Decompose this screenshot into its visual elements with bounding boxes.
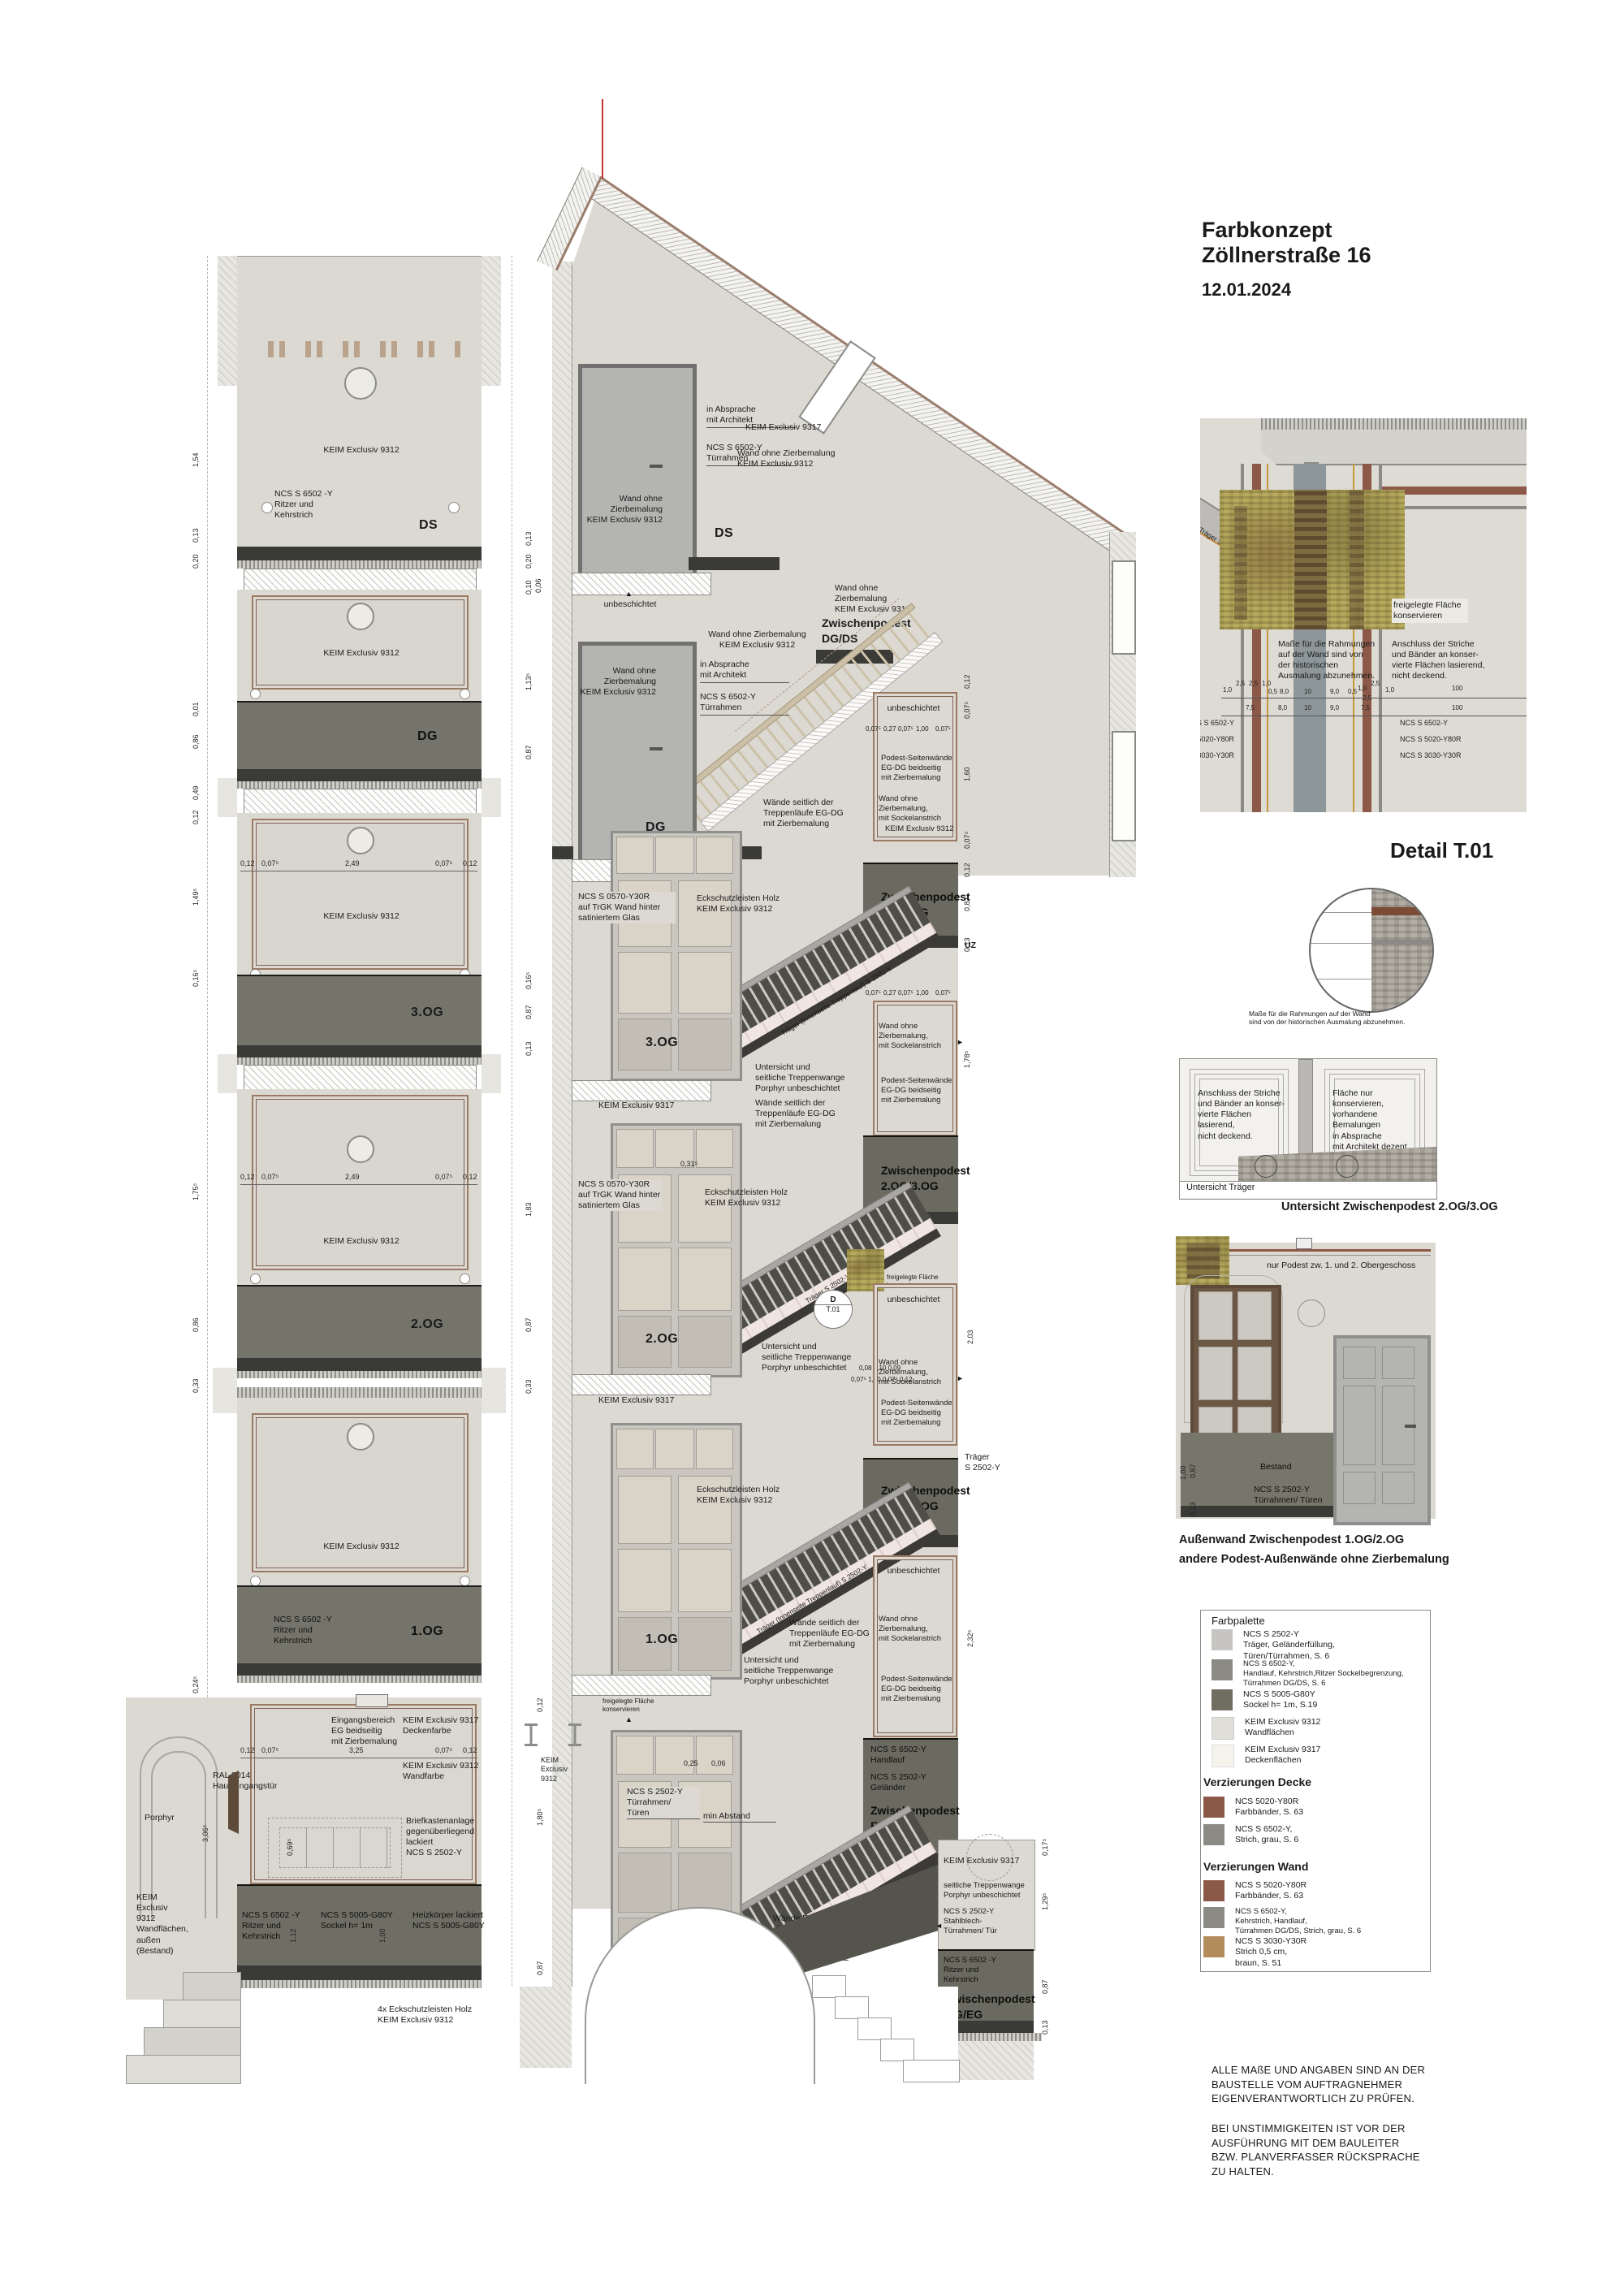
detail-marker-d: D	[814, 1295, 852, 1305]
og3-tile	[237, 1057, 482, 1065]
podrow2-2: 0,27	[883, 989, 896, 997]
section-floor-1og: 1.OG	[646, 1632, 678, 1647]
eg-transom	[356, 1694, 388, 1707]
og2-dim5: 0,12	[463, 1173, 477, 1181]
eckschutz-2: Eckschutzleisten Holz KEIM Exclusiv 9312	[705, 1187, 818, 1209]
podrow2-4: 1,00	[916, 989, 929, 997]
section-slab-1og	[572, 1675, 711, 1696]
dimL-5: 0,49	[192, 785, 200, 800]
legend-row-d1: NCS S 6502-Y,Strich, grau, S. 6	[1203, 1824, 1415, 1846]
og1-tile	[237, 1676, 482, 1683]
min-abstand: min Abstand	[703, 1811, 776, 1823]
zw-kgeg: Zwischenpodest KG/EG	[946, 1991, 1035, 2022]
og2-dim1: 0,12	[240, 1173, 255, 1181]
ds-slab-unbeschichtet: unbeschichtet	[590, 599, 671, 610]
kg-stair-steps	[812, 1975, 958, 2084]
sheet-date: 12.01.2024	[1202, 279, 1543, 301]
dimR-9: 1,83	[525, 1202, 533, 1217]
og2-tile2	[237, 1387, 482, 1398]
og3-dim-row5: 0,12	[463, 859, 477, 867]
og2-wall-paint: KEIM Exclusiv 9312	[292, 1236, 430, 1247]
eg-dim3: 3,25	[349, 1746, 364, 1754]
og3-strip	[237, 1045, 482, 1057]
dg-tile	[237, 781, 482, 789]
exterior-steps	[126, 1972, 240, 2086]
t01-freigelegt: freigelegte Fläche konservieren	[1392, 599, 1468, 623]
ds-anchor-left	[261, 502, 273, 513]
podrow2-1: 0,07⁵	[866, 989, 881, 997]
ground-left	[520, 1987, 572, 2068]
ds-slab-arrow: ▲	[625, 590, 633, 598]
t01-masse: Maße für die Rahmungen auf der Wand sind…	[1278, 639, 1388, 682]
dimL-0: 1,54	[192, 452, 200, 467]
kg-arrow: ◄	[935, 1922, 943, 1930]
aw-nur-podest: nur Podest zw. 1. und 2. Obergeschoss	[1267, 1261, 1429, 1271]
parapet-right	[482, 256, 501, 386]
og1-wall-paint: KEIM Exclusiv 9312	[292, 1542, 430, 1552]
dg-slab-end-r	[482, 778, 501, 817]
dg-slab	[244, 789, 477, 815]
og3-medallion	[347, 827, 374, 854]
dg-spandrel	[237, 701, 482, 771]
swatch-d1	[1203, 1824, 1224, 1845]
dimR-2: 0,06	[534, 578, 542, 593]
og2-dim3: 2,49	[345, 1173, 360, 1181]
untersicht-anschluss: Anschluss der Striche und Bänder an kons…	[1198, 1088, 1289, 1142]
eg-door-note: NCS S 2502-Y Türrahmen/ Türen	[627, 1787, 700, 1819]
porphyr-note: Porphyr	[145, 1813, 193, 1823]
dimS-4: 0,12	[963, 863, 971, 877]
dim-006: 0,06	[711, 1759, 726, 1767]
sockel-note: NCS S 5005-G80Y Sockel h= 1m	[321, 1910, 412, 1931]
dim-025: 0,25	[684, 1759, 698, 1767]
ds-anchor-right	[448, 502, 460, 513]
swatch-p3	[1212, 1717, 1234, 1740]
sockel-ritzer-note: NCS S 6502 -Y Ritzer und Kehrstrich	[242, 1910, 312, 1942]
pod0-panel	[873, 1555, 957, 1737]
aw-bestand: Bestand	[1260, 1462, 1309, 1472]
dg-medallion	[347, 603, 374, 630]
eckschutz4-note: 4x Eckschutzleisten Holz KEIM Exclusiv 9…	[378, 2004, 499, 2026]
dimL-10: 0,86	[192, 1317, 200, 1332]
drawing-sheet: Farbkonzept Zöllnerstraße 16 12.01.2024 …	[0, 0, 1624, 2279]
swatch-w1	[1203, 1907, 1224, 1928]
untersicht-traeger-label: Untersicht Träger	[1186, 1183, 1255, 1194]
ds-slab-tile	[237, 560, 482, 569]
ceil-9317-2og: KEIM Exclusiv 9317	[598, 1395, 704, 1406]
legend-title: Farbpalette	[1212, 1615, 1265, 1628]
swatch-p2	[1212, 1689, 1233, 1710]
aussenwand-detail: nur Podest zw. 1. und 2. Obergeschoss Be…	[1176, 1236, 1436, 1525]
dimR-3: 0,10	[525, 580, 533, 595]
og3-dim-row2: 0,07⁵	[261, 859, 279, 867]
og3-slab-end-r	[482, 1054, 501, 1093]
dimS-13: 0,13	[1041, 2020, 1049, 2035]
podrow1-1: 0,07⁵	[866, 725, 881, 733]
og3-dim-line	[240, 871, 477, 871]
swatch-w2	[1203, 1936, 1224, 1957]
pod0-unbeschichtet: unbeschichtet	[881, 1566, 946, 1576]
dimS-12: 0,87	[1041, 1979, 1049, 1994]
aussenwand-caption2: andere Podest-Außenwände ohne Zierbemalu…	[1179, 1553, 1449, 1566]
legend-row-p4: KEIM Exclusiv 9317Deckenflächen	[1212, 1745, 1423, 1767]
dimL-1: 0,20	[192, 554, 200, 569]
dimL-15: 1,00	[378, 1928, 387, 1943]
pod2-seiten: Podest-Seitenwände EG-DG beidseitig mit …	[881, 1076, 954, 1105]
dimL-12: 0,24⁵	[192, 1676, 200, 1693]
legend-row-p1: NCS S 6502-Y,Handlauf, Kehrstrich,Ritzer…	[1212, 1659, 1431, 1689]
section-slab-ds	[572, 573, 711, 595]
facade-window-1	[1112, 560, 1136, 655]
ds-door-handle	[650, 465, 663, 468]
pod1-arrow: ►	[957, 1374, 964, 1382]
og3-wall-paint: KEIM Exclusiv 9312	[292, 911, 430, 922]
og2-dim-line	[240, 1184, 477, 1185]
detail-t01: Träger S 2502-Y freigelegte Fläche konse…	[1200, 418, 1527, 812]
og1-ritzer-note: NCS S 6502 -Y Ritzer und Kehrstrich	[274, 1615, 363, 1646]
dimL-13: 3,06⁵	[201, 1825, 209, 1842]
pod1-sockel: Wand ohne Zierbemalung, mit Sockelanstri…	[879, 1358, 956, 1387]
pod3-sockel: Wand ohne Zierbemalung, mit Sockelanstri…	[879, 794, 956, 824]
untersicht-masse: Maße für die Rahmungen auf der Wand sind…	[1249, 1010, 1436, 1026]
eg-dim4: 0,07⁵	[435, 1746, 452, 1754]
dimR-10: 0,87	[525, 1317, 533, 1332]
pod3-keim: KEIM Exclusiv 9312	[885, 824, 958, 834]
untersicht-detail: Maße für die Rahmungen auf der Wand sind…	[1177, 881, 1437, 1216]
eg-dim2: 0,07⁵	[261, 1746, 279, 1754]
freigelegt-sec-2: freigelegte Fläche konservieren	[603, 1697, 676, 1713]
og3-dim-row: 0,12	[240, 859, 255, 867]
og3-dim-row4: 0,07⁵	[435, 859, 452, 867]
dimR-4: 1,13⁵	[525, 673, 533, 690]
dg-door-absprache: in Absprache mit Architekt	[700, 659, 789, 683]
floor-tag-dg: DG	[417, 729, 438, 744]
dg-anchor-left	[250, 689, 261, 699]
og3-spandrel	[237, 975, 482, 1047]
og2-anchor-r	[460, 1274, 470, 1284]
dimR-7: 0,87	[525, 1005, 533, 1019]
section-slab-3og	[572, 1080, 711, 1101]
dimL-3: 0,01	[192, 702, 200, 716]
briefkasten-note: Briefkastenanlage gegenüberliegend lacki…	[406, 1816, 487, 1859]
dimS-9: 2,32⁵	[966, 1630, 974, 1647]
legend-row-p3: KEIM Exclusiv 9312Wandflächen	[1212, 1717, 1423, 1740]
section-floor-3og: 3.OG	[646, 1036, 678, 1050]
freigelegt-arrow: ▲	[625, 1715, 633, 1723]
dimS-11: 1,29⁵	[1041, 1893, 1049, 1910]
dimS-2: 1,60	[963, 767, 971, 781]
swatch-d0	[1203, 1797, 1224, 1818]
waende-seitlich-2: Wände seitlich der Treppenläufe EG-DG mi…	[755, 1098, 865, 1130]
dimR-6: 0,16⁵	[525, 972, 533, 989]
swatch-p0	[1212, 1629, 1233, 1650]
dimR-11: 0,33	[525, 1379, 533, 1394]
eg-dim-line	[240, 1758, 477, 1758]
eg-dim5: 0,12	[463, 1746, 477, 1754]
floor-tag-3og: 3.OG	[411, 1005, 443, 1020]
traeger-right-label: Träger S 2502-Y	[965, 1452, 1013, 1473]
ds-wall-left-note: Wand ohne Zierbemalung KEIM Exclusiv 931…	[573, 494, 663, 525]
dimL-4: 0,86	[192, 734, 200, 749]
title-block: Farbkonzept Zöllnerstraße 16 12.01.2024	[1202, 218, 1543, 301]
swatch-p1	[1212, 1659, 1233, 1680]
roof-apex-line	[602, 99, 603, 179]
og2-strip	[237, 1358, 482, 1371]
eg-tile	[237, 1980, 482, 1988]
dimL-2: 0,13	[192, 528, 200, 543]
og2-glass-note: NCS S 0570-Y30R auf TrGK Wand hinter sat…	[578, 1179, 663, 1211]
podrow1-3: 0,07⁵	[898, 725, 914, 733]
eckschutz-3: Eckschutzleisten Holz KEIM Exclusiv 9312	[697, 1485, 810, 1506]
ds-oculus	[344, 367, 377, 400]
dimS-0: 0,12	[963, 674, 971, 689]
dimR-8: 0,13	[525, 1041, 533, 1056]
og3-slab	[244, 1065, 477, 1091]
dimR-0: 0,13	[525, 531, 533, 546]
legend-row-w0: NCS S 5020-Y80RFarbbänder, S. 63	[1203, 1880, 1415, 1902]
og2-medallion	[347, 1135, 374, 1163]
gelaender-note: NCS S 2502-Y Geländer	[870, 1772, 952, 1793]
aw-door	[1333, 1335, 1431, 1525]
dimL-16: 0,69⁵	[286, 1839, 294, 1856]
section-floor-2og: 2.OG	[646, 1332, 678, 1347]
house-door-leaf	[228, 1771, 239, 1834]
facade-window-2	[1112, 731, 1136, 841]
pod3-seiten: Podest-Seitenwände EG-DG beidseitig mit …	[881, 754, 954, 783]
podrow1-4: 1,00	[916, 725, 929, 733]
ds-ritzer-note: NCS S 6502 -Y Ritzer und Kehrstrich	[274, 489, 364, 521]
pod1-seiten: Podest-Seitenwände EG-DG beidseitig mit …	[881, 1399, 954, 1428]
dimL-9: 1,75⁵	[192, 1183, 200, 1200]
pod2-sockel: Wand ohne Zierbemalung, mit Sockelanstri…	[879, 1022, 956, 1051]
dimR-14: 0,87	[536, 1961, 544, 1975]
attic-vents	[268, 341, 463, 357]
og1-strip	[237, 1663, 482, 1676]
og2-slab-end-r	[482, 1368, 506, 1413]
dimR-13: 1,80⁵	[536, 1809, 544, 1826]
detail-marker: D T.01	[814, 1290, 853, 1329]
detail-t01-title: Detail T.01	[1390, 838, 1493, 863]
og2-dim4: 0,07⁵	[435, 1173, 452, 1181]
dg-door-rahmen: NCS S 6502-Y Türrahmen	[700, 692, 789, 716]
heizkoerper-note: Heizkörper lackiert NCS S 5005-G80Y	[412, 1910, 503, 1931]
dg-door-sill-l	[552, 846, 573, 859]
dimS-6: 0,13	[963, 937, 971, 952]
roof-ceiling-paint: KEIM Exclusiv 9317	[745, 422, 859, 433]
floor-tag-ds: DS	[419, 518, 438, 533]
gap-beam-1	[525, 1723, 538, 1746]
legend-row-w2: NCS S 3030-Y30RStrich 0,5 cm, braun, S. …	[1203, 1936, 1415, 1969]
handlauf-note: NCS S 6502-Y Handlauf	[870, 1745, 952, 1766]
floor-tag-2og: 2.OG	[411, 1317, 443, 1332]
dimL-11: 0,33	[192, 1378, 200, 1393]
og2-dim2: 0,07⁵	[261, 1173, 279, 1181]
dimR-5: 0,87	[525, 745, 533, 759]
dimL-7: 1,49⁵	[192, 889, 200, 906]
pod0-sockel: Wand ohne Zierbemalung, mit Sockelanstri…	[879, 1615, 956, 1644]
ds-wall-paint: KEIM Exclusiv 9312	[292, 445, 430, 456]
eckschutz-1: Eckschutzleisten Holz KEIM Exclusiv 9312	[697, 893, 810, 915]
dg-wall-paint: KEIM Exclusiv 9312	[292, 648, 430, 659]
eg-decke-note: KEIM Exclusiv 9317 Deckenfarbe	[403, 1715, 492, 1736]
ds-cornice	[237, 547, 482, 560]
detail-marker-t01: T.01	[814, 1305, 852, 1313]
ds-slab	[244, 569, 477, 591]
dimS-7: 1,78⁵	[963, 1051, 971, 1068]
untersicht-3: Untersicht und seitliche Treppenwange Po…	[744, 1655, 866, 1687]
dimS-1: 0,07⁵	[963, 702, 971, 719]
dg-anchor-right	[460, 689, 470, 699]
kg-wange-note: seitliche Treppenwange Porphyr unbeschic…	[944, 1881, 1037, 1901]
pod3-unbeschichtet: unbeschichtet	[881, 703, 946, 714]
dg-strip	[237, 769, 482, 781]
og3-slab-end-l	[218, 1054, 237, 1093]
dimL-14: 1,12	[289, 1928, 297, 1943]
eg-wand-note: KEIM Exclusiv 9312 Wandfarbe	[403, 1761, 496, 1782]
sheet-title-line1: Farbkonzept	[1202, 218, 1543, 243]
dimS-10: 0,17⁵	[1041, 1839, 1049, 1856]
dimS-8: 2,03	[966, 1330, 974, 1344]
legend-wand-title: Verzierungen Wand	[1203, 1860, 1308, 1875]
legend-row-p0: NCS S 2502-YTräger, Geländerfüllung, Tür…	[1212, 1629, 1423, 1662]
og2-slab-end-l	[213, 1368, 237, 1413]
og3-glass-note: NCS S 0570-Y30R auf TrGK Wand hinter sat…	[578, 892, 676, 923]
swatch-p4	[1212, 1745, 1234, 1767]
ds-door	[578, 364, 697, 578]
briefkasten-grid-inner	[279, 1827, 391, 1868]
keim9312-vert: KEIM Exclusiv 9312	[541, 1756, 573, 1784]
waende-seitlich-1: Wände seitlich der Treppenläufe EG-DG mi…	[763, 798, 873, 829]
aw-tueren: NCS S 2502-Y Türrahmen/ Türen	[1254, 1485, 1335, 1506]
dg-slab-end-l	[218, 778, 237, 817]
swatch-w0	[1203, 1880, 1224, 1901]
kg-stahlblech-note: NCS S 2502-Y Stahlblech- Türrahmen/ Tür	[944, 1907, 1033, 1936]
dimR-12: 0,12	[536, 1697, 544, 1712]
podrow2-3: 0,07⁵	[898, 989, 914, 997]
section-slab-2og	[572, 1374, 711, 1395]
og2-tile	[237, 1371, 482, 1378]
pod0-seiten: Podest-Seitenwände EG-DG beidseitig mit …	[881, 1675, 954, 1704]
og3-dim-row3: 2,49	[345, 859, 360, 867]
parapet-left	[218, 256, 237, 386]
legend-row-d0: NCS 5020-Y80RFarbbänder, S. 63	[1203, 1797, 1415, 1818]
dg-door-handle	[650, 747, 663, 750]
t01-anschluss: Anschluss der Striche und Bänder an kons…	[1392, 639, 1501, 682]
dg-upper-wall-note: Wand ohne Zierbemalung KEIM Exclusiv 931…	[686, 629, 828, 651]
eg-sockel-strip	[237, 1965, 482, 1980]
eg-dim1: 0,12	[240, 1746, 255, 1754]
gap-beam-2	[568, 1723, 581, 1746]
dimS-3: 0,07⁵	[963, 832, 971, 849]
section-floor-ds: DS	[715, 526, 733, 541]
og1-medallion	[347, 1423, 374, 1451]
aussenwand-caption1: Außenwand Zwischenpodest 1.OG/2.OG	[1179, 1533, 1404, 1546]
og2-anchor-l	[250, 1274, 261, 1284]
podrow1-5: 0,07⁵	[935, 725, 951, 733]
ceil-9317-3og: KEIM Exclusiv 9317	[598, 1101, 704, 1111]
untersicht-caption: Untersicht Zwischenpodest 2.OG/3.OG	[1281, 1200, 1498, 1213]
pod2-arrow: ►	[957, 1038, 964, 1046]
bestand-wall-note: KEIM Exclusiv 9312 Wandflächen, außen (B…	[136, 1892, 201, 1957]
legend-decke-title: Verzierungen Decke	[1203, 1775, 1311, 1790]
dimL-8: 0,16⁵	[192, 970, 200, 987]
legend-row-w1: NCS S 6502-Y,Kehrstrich, Handlauf, Türra…	[1203, 1907, 1423, 1936]
dimR-1: 0,20	[525, 554, 533, 569]
podrow1-2: 0,27	[883, 725, 896, 733]
elevation-axis-right	[512, 256, 512, 1986]
podrow2-5: 0,07⁵	[935, 989, 951, 997]
untersicht-1: Untersicht und seitliche Treppenwange Po…	[755, 1062, 877, 1094]
dim-0315: 0,31⁵	[680, 1160, 698, 1168]
roof-wall-paint: Wand ohne Zierbemalung KEIM Exclusiv 931…	[737, 448, 875, 469]
kg-ceil-note: KEIM Exclusiv 9317	[944, 1856, 1033, 1866]
legend-row-p2: NCS S 5005-G80YSockel h= 1m, S.19	[1212, 1689, 1423, 1711]
sheet-title-line2: Zöllnerstraße 16	[1202, 243, 1543, 268]
og2-spandrel	[237, 1285, 482, 1360]
pod1-unbeschichtet: unbeschichtet	[881, 1295, 946, 1305]
notes-paragraph-2: BEI UNSTIMMIGKEITEN IST VOR DER AUSFÜHRU…	[1212, 2121, 1455, 2178]
dimL-6: 0,12	[192, 810, 200, 824]
ds-door-sill	[689, 557, 780, 570]
notes-paragraph-1: ALLE MAßE UND ANGABEN SIND AN DER BAUSTE…	[1212, 2063, 1455, 2106]
dimS-5: 0,87	[963, 897, 971, 911]
ral-door-note: RAL 8014 Hauseingangstür	[213, 1771, 287, 1792]
floor-tag-1og: 1.OG	[411, 1624, 443, 1639]
dg-door-left-note: Wand ohne Zierbemalung KEIM Exclusiv 931…	[568, 666, 656, 698]
